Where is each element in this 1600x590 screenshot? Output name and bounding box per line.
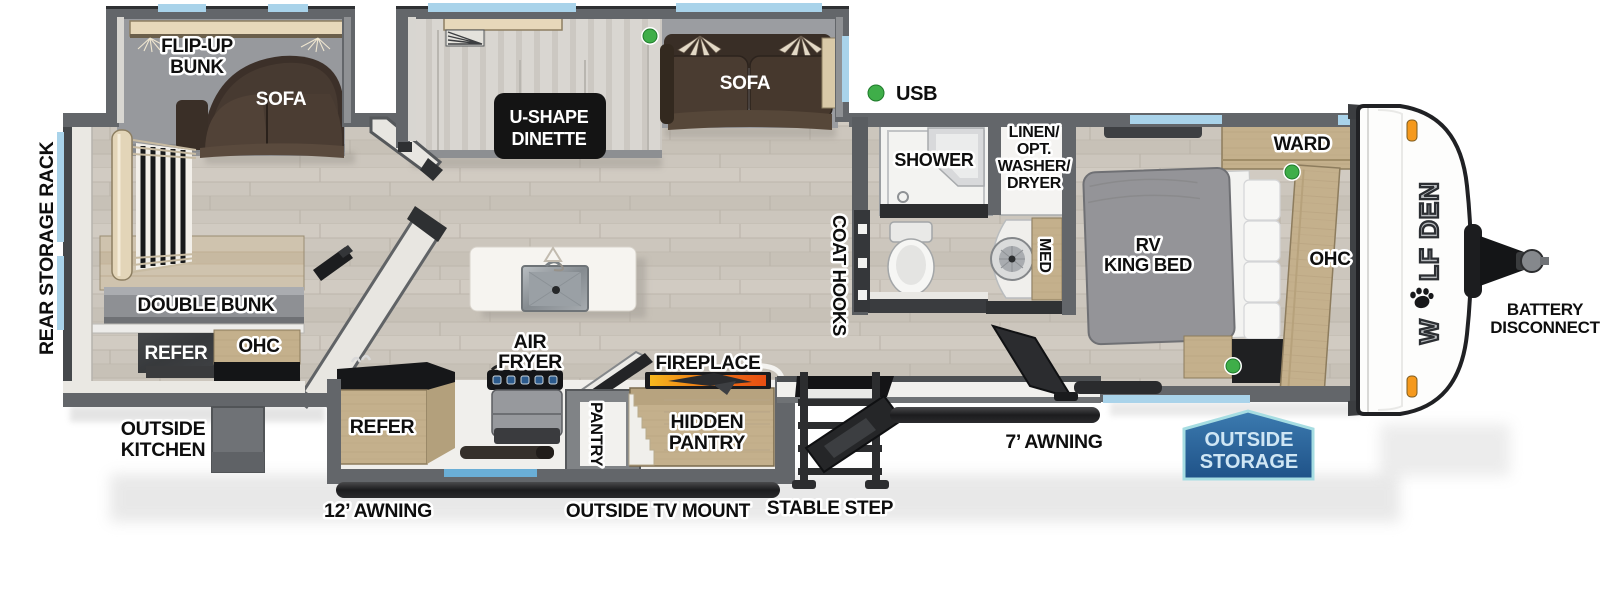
svg-text:SOFA: SOFA bbox=[720, 73, 771, 94]
svg-text:STABLE STEP: STABLE STEP bbox=[767, 498, 894, 519]
svg-text:LINEN/: LINEN/ bbox=[1009, 124, 1061, 141]
svg-text:REAR STORAGE RACK: REAR STORAGE RACK bbox=[36, 141, 58, 355]
svg-text:SOFA: SOFA bbox=[256, 89, 307, 110]
svg-text:HIDDEN: HIDDEN bbox=[671, 411, 744, 433]
svg-text:OUTSIDE: OUTSIDE bbox=[1205, 429, 1294, 451]
svg-text:KING BED: KING BED bbox=[1104, 254, 1192, 275]
svg-text:DISCONNECT: DISCONNECT bbox=[1490, 318, 1600, 337]
svg-text:W: W bbox=[1414, 318, 1444, 344]
svg-text:COAT HOOKS: COAT HOOKS bbox=[829, 215, 850, 336]
svg-text:STORAGE: STORAGE bbox=[1200, 451, 1299, 473]
svg-text:OHC: OHC bbox=[1309, 249, 1351, 270]
svg-text:DINETTE: DINETTE bbox=[512, 129, 587, 149]
svg-text:KITCHEN: KITCHEN bbox=[121, 439, 206, 461]
svg-text:7’ AWNING: 7’ AWNING bbox=[1005, 431, 1102, 453]
svg-text:12’ AWNING: 12’ AWNING bbox=[324, 500, 432, 522]
svg-text:OHC: OHC bbox=[238, 336, 280, 357]
svg-text:DRYER: DRYER bbox=[1007, 175, 1062, 192]
svg-text:OUTSIDE TV MOUNT: OUTSIDE TV MOUNT bbox=[566, 501, 751, 522]
svg-text:RV: RV bbox=[1136, 234, 1162, 255]
svg-text:FIREPLACE: FIREPLACE bbox=[656, 353, 761, 374]
svg-text:MED: MED bbox=[1036, 238, 1053, 273]
svg-text:DOUBLE BUNK: DOUBLE BUNK bbox=[137, 295, 275, 316]
svg-text:USB: USB bbox=[896, 83, 937, 105]
svg-text:FRYER: FRYER bbox=[498, 351, 562, 373]
svg-text:OPT.: OPT. bbox=[1017, 141, 1051, 158]
svg-text:FLIP-UP: FLIP-UP bbox=[161, 36, 233, 57]
svg-text:REFER: REFER bbox=[145, 343, 208, 364]
svg-text:BATTERY: BATTERY bbox=[1507, 300, 1584, 319]
svg-text:SHOWER: SHOWER bbox=[894, 150, 974, 170]
svg-text:LF DEN: LF DEN bbox=[1414, 181, 1444, 281]
svg-text:PANTRY: PANTRY bbox=[669, 432, 745, 454]
svg-text:REFER: REFER bbox=[350, 416, 415, 438]
svg-text:BUNK: BUNK bbox=[170, 57, 224, 78]
svg-text:WASHER/: WASHER/ bbox=[998, 158, 1071, 175]
svg-text:PANTRY: PANTRY bbox=[587, 402, 605, 466]
svg-text:WARD: WARD bbox=[1274, 134, 1331, 155]
svg-text:AIR: AIR bbox=[514, 331, 547, 353]
svg-text:U-SHAPE: U-SHAPE bbox=[510, 107, 589, 127]
svg-text:OUTSIDE: OUTSIDE bbox=[121, 418, 206, 440]
